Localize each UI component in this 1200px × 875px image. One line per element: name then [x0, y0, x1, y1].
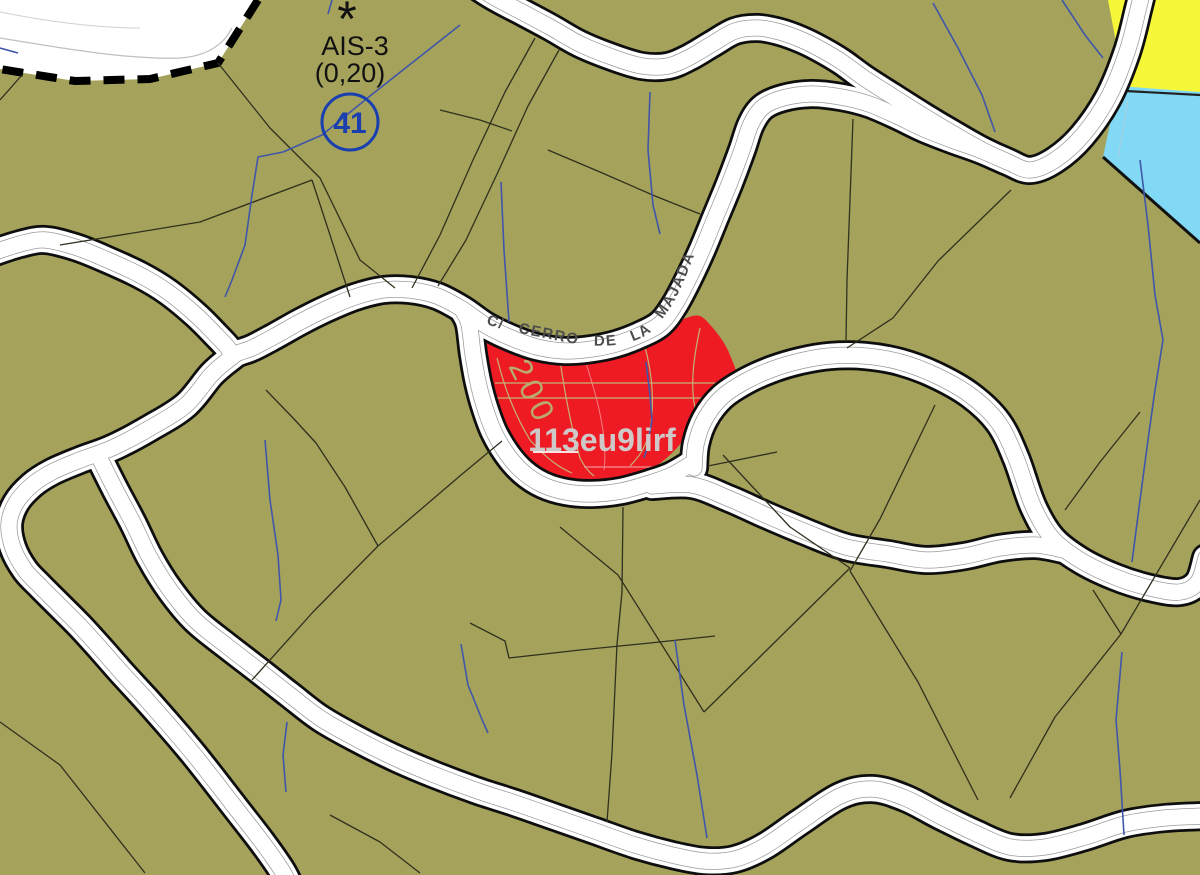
- svg-text:113eu9lirf: 113eu9lirf: [528, 422, 676, 458]
- svg-text:(0,20): (0,20): [315, 58, 386, 88]
- svg-text:41: 41: [333, 107, 366, 140]
- svg-text:AIS-3: AIS-3: [321, 31, 389, 61]
